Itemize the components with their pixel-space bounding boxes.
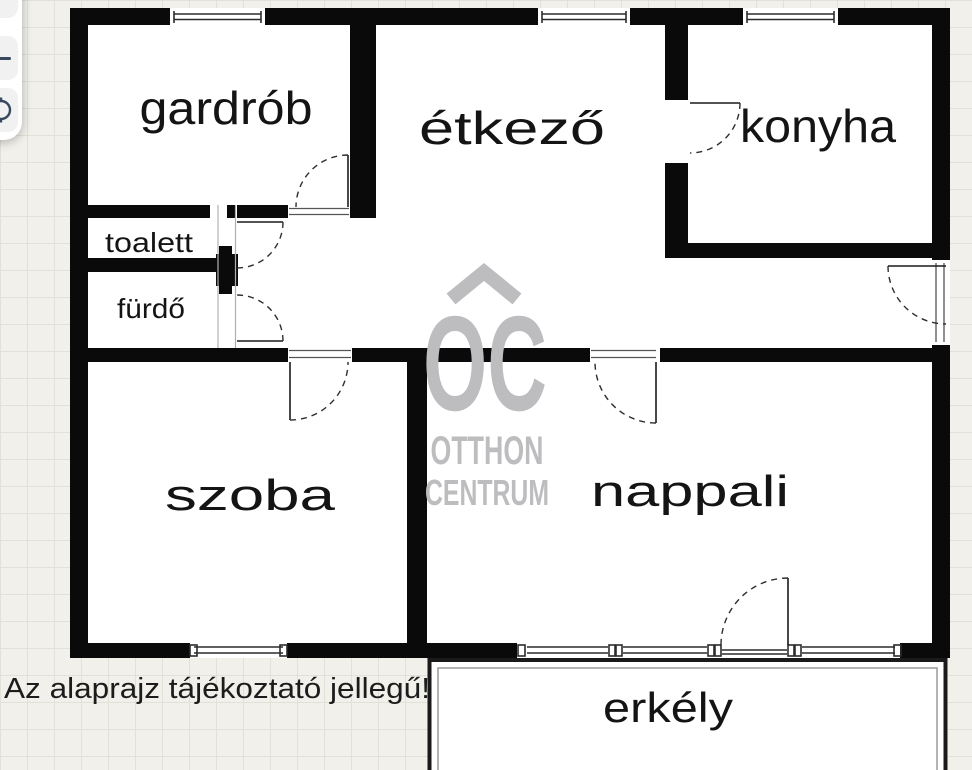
watermark-monogram: OC — [423, 288, 547, 439]
disclaimer-text: Az alaprajz tájékoztató jellegű! — [4, 673, 430, 705]
room-label-etkezo: étkező — [419, 102, 605, 154]
room-label-toalett: toalett — [105, 227, 193, 258]
toolbar-button-1[interactable] — [0, 0, 18, 18]
room-label-gardrob: gardrób — [140, 82, 313, 134]
side-toolbar — [0, 0, 22, 140]
room-label-szoba: szoba — [165, 471, 336, 520]
room-label-konyha: konyha — [740, 100, 896, 152]
minus-icon — [0, 57, 11, 60]
watermark-logo: OC OTTHON CENTRUM — [423, 272, 549, 513]
location-crosshair-icon — [0, 97, 15, 123]
room-label-erkely: erkély — [603, 684, 733, 731]
floorplan-viewer: OC OTTHON CENTRUM gardrób étkező konyha … — [0, 0, 972, 770]
watermark-text-line2: CENTRUM — [425, 472, 549, 513]
room-label-furdo: fürdő — [117, 293, 185, 324]
watermark-text-line1: OTTHON — [431, 429, 544, 473]
floorplan-canvas: OC OTTHON CENTRUM gardrób étkező konyha … — [0, 0, 972, 770]
toolbar-button-2[interactable] — [0, 36, 18, 80]
room-label-nappali: nappali — [591, 467, 789, 516]
toolbar-button-3[interactable] — [0, 88, 18, 132]
